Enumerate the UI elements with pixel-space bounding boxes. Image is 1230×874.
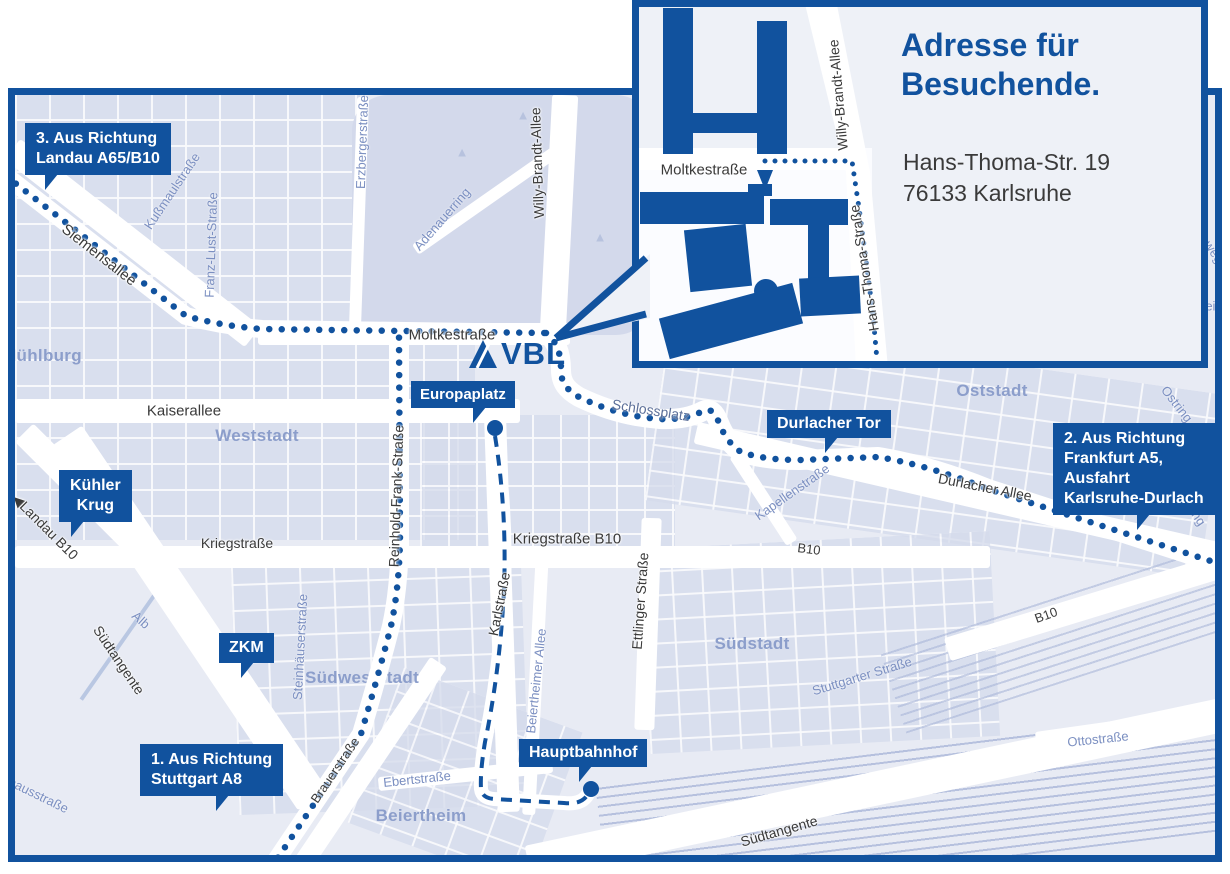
street-label-kaiserallee: Kaiserallee [147, 403, 221, 420]
inset-title-line: Adresse für [901, 26, 1100, 65]
callout-line: 2. Aus Richtung [1064, 429, 1204, 449]
callout-line: Karlsruhe-Durlach [1064, 489, 1204, 509]
street-label-kriegstrasse: Kriegstraße [201, 535, 273, 551]
callout-line: Frankfurt A5, [1064, 449, 1204, 469]
schlossgarten-park [352, 95, 652, 335]
vbl-triangle-icon [468, 339, 498, 369]
vbl-directions-map: ▲ ▲ ▲ ▲ ▲ ▲ [0, 0, 1230, 874]
callout-line: Durlacher Tor [777, 414, 881, 434]
callout-line: Ausfahrt [1064, 469, 1204, 489]
callout-line: 1. Aus Richtung [151, 750, 272, 770]
inset-title-line: Besuchende. [901, 65, 1100, 104]
street-label-b10-mid: B10 [797, 540, 822, 558]
callout-line: Stuttgart A8 [151, 770, 272, 790]
area-label-suedstadt: Südstadt [714, 634, 789, 654]
callout-line: Krug [70, 496, 121, 516]
area-label-suedweststadt: Südweststadt [305, 668, 419, 688]
h-building [663, 8, 787, 154]
callout-line: Kühler [70, 476, 121, 496]
area-label-beiertheim: Beiertheim [376, 806, 467, 826]
inset-address: Hans-Thoma-Str. 19 76133 Karlsruhe [903, 147, 1110, 209]
callout-europaplatz: Europaplatz [411, 381, 515, 408]
street-label-suedtangente-west: Südtangente [90, 623, 148, 698]
callout-durlacher-tor: Durlacher Tor [767, 410, 891, 438]
inset-address-line: 76133 Karlsruhe [903, 178, 1110, 209]
inset-title: Adresse für Besuchende. [901, 26, 1100, 104]
inset-street-label-moltkestrasse: Moltkestraße [661, 162, 748, 179]
callout-kuehler-krug: Kühler Krug [59, 470, 132, 522]
vbl-logo-text: VBL [501, 339, 566, 369]
area-label-muehlburg: Mühlburg [15, 346, 82, 366]
callout-line: Hauptbahnhof [529, 743, 637, 763]
vbl-logo: VBL [468, 339, 566, 369]
callout-route-1-stuttgart: 1. Aus Richtung Stuttgart A8 [140, 744, 283, 796]
callout-zkm: ZKM [219, 633, 274, 663]
inset-detail-map: Moltkestraße Willy-Brandt-Allee Hans-Tho… [632, 0, 1208, 368]
street-label-pulverhausstrasse: Pulverhausstraße [15, 758, 71, 816]
callout-route-2-frankfurt: 2. Aus Richtung Frankfurt A5, Ausfahrt K… [1053, 423, 1215, 515]
tree-icon: ▲ [594, 230, 607, 245]
callout-line: Europaplatz [420, 385, 506, 404]
callout-line: 3. Aus Richtung [36, 129, 160, 149]
callout-line: ZKM [229, 638, 264, 658]
area-label-weststadt: Weststadt [215, 426, 299, 446]
street-label-kriegstrasse-b10: Kriegstraße B10 [513, 531, 621, 548]
callout-route-3-landau: 3. Aus Richtung Landau A65/B10 [25, 123, 171, 175]
area-label-oststadt: Oststadt [956, 381, 1027, 401]
callout-hauptbahnhof: Hauptbahnhof [519, 739, 647, 767]
inset-address-line: Hans-Thoma-Str. 19 [903, 147, 1110, 178]
callout-line: Landau A65/B10 [36, 149, 160, 169]
tree-icon: ▲ [456, 145, 469, 160]
